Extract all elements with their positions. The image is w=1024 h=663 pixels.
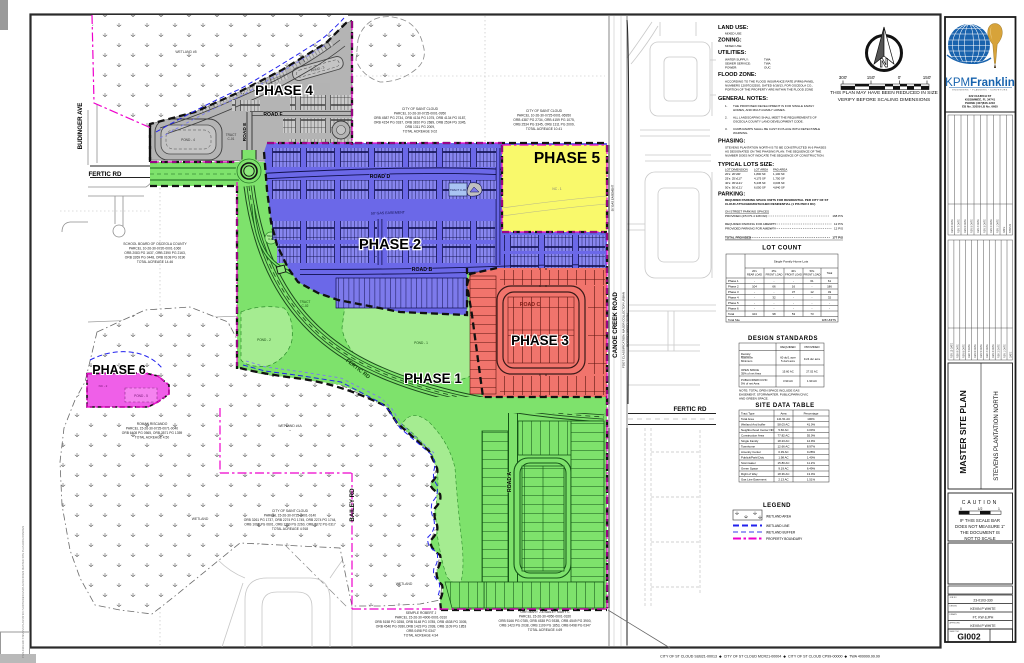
svg-text:-: - [774,301,775,305]
svg-text:300': 300' [839,75,848,80]
svg-text:-: - [754,296,755,300]
svg-text:ORB 2534 PG 3345, ORB 1311 PG: ORB 2534 PG 3345, ORB 1311 PG 2009, [513,123,574,127]
svg-text:0.39 AC: 0.39 AC [778,450,788,454]
svg-text:CANOE CREEK ROAD: CANOE CREEK ROAD [612,292,619,358]
svg-text:LOT DIMENSION: LOT DIMENSION [725,168,748,172]
svg-text:-: - [774,279,775,283]
svg-text:Phase 5: Phase 5 [728,301,739,305]
svg-text:REAR LOAD: REAR LOAD [747,273,762,277]
svg-text:100%: 100% [807,417,815,421]
svg-text:REV 3 DATE: REV 3 DATE [984,219,987,233]
svg-text:WETLAND BUFFER: WETLAND BUFFER [766,531,796,535]
svg-text:SITE DATA TABLE: SITE DATA TABLE [755,403,814,409]
svg-text:1,100 SF: 1,100 SF [773,172,785,176]
svg-text:ROMAN RISCANDO: ROMAN RISCANDO [137,422,168,426]
svg-text:ORB 5166 PG 0785, ORB 4538 PG: ORB 5166 PG 0785, ORB 4538 PG 933B, ORB … [499,619,592,623]
svg-text:5,445 SF: 5,445 SF [754,181,766,185]
svg-text:DOES NOT MEASURE 1": DOES NOT MEASURE 1" [955,524,1005,529]
svg-text:REV 6 DATE: REV 6 DATE [964,219,967,233]
svg-text:Minimum: Minimum [741,359,753,363]
svg-text:AND GREEN SPACE.: AND GREEN SPACE. [739,397,769,401]
svg-text:TOTAL PROVIDED: TOTAL PROVIDED [725,236,752,240]
svg-text:PHASE 1: PHASE 1 [404,371,462,386]
svg-text:0.28%: 0.28% [807,450,816,454]
svg-text:NC - 2: NC - 2 [99,384,108,388]
svg-text:REV 4 DATE: REV 4 DATE [977,219,980,233]
svg-text:1.98 AC: 1.98 AC [778,456,788,460]
svg-text:LOT COUNT: LOT COUNT [762,246,802,252]
svg-text:SCHOOL BOARD OF OSCEOLA COUNTY: SCHOOL BOARD OF OSCEOLA COUNTY [123,242,187,246]
svg-text:-: - [793,279,794,283]
svg-text:PARCEL 15-26-30-4950-0001-0320: PARCEL 15-26-30-4950-0001-0320 [519,615,571,619]
svg-text:20's: 20'x90': 20's: 20'x90' [725,172,741,176]
svg-text:DRAWN: DRAWN [950,613,958,616]
svg-text:-: - [754,307,755,311]
svg-text:Green Space: Green Space [741,467,758,471]
svg-text:40's: 40's [791,269,796,273]
svg-text:141.51 AC: 141.51 AC [777,417,791,421]
svg-text:61: 61 [828,279,832,283]
svg-text:168 P/S: 168 P/S [832,214,843,218]
svg-text:ROAD D: ROAD D [370,174,391,180]
svg-text:186: 186 [827,285,832,289]
svg-text:POWER:: POWER: [725,66,737,70]
svg-text:REV 9 DATE: REV 9 DATE [956,344,959,358]
svg-text:LAND USE:: LAND USE: [718,25,749,31]
svg-text:IF THIS SCALE BAR: IF THIS SCALE BAR [960,518,1000,523]
svg-text:MASTER SITE PLAN: MASTER SITE PLAN [958,390,968,474]
svg-text:PHASE 3: PHASE 3 [511,333,569,348]
svg-text:50' GAS EASEMENT: 50' GAS EASEMENT [611,184,615,211]
svg-text:-: - [812,301,813,305]
svg-text:ORB 1311 PG 2009,: ORB 1311 PG 2009, [405,125,435,129]
svg-text:25's: 25's [772,269,777,273]
svg-text:5 du/1 acre: 5 du/1 acre [781,359,795,363]
svg-text:PAD AREA: PAD AREA [773,168,787,172]
svg-text:NUMBER DOES NOT INDICATE THE S: NUMBER DOES NOT INDICATE THE SEQUENCE OF… [725,154,825,158]
svg-text:Phase 3: Phase 3 [728,290,739,294]
svg-text:98: 98 [772,312,776,316]
svg-text:DESIGN STANDARDS: DESIGN STANDARDS [748,336,818,342]
svg-text:55.0%: 55.0% [807,434,816,438]
svg-text:FT, KW &JPH: FT, KW &JPH [973,616,994,620]
svg-text:REV 1 DATE: REV 1 DATE [997,219,1000,233]
svg-text:37: 37 [792,290,796,294]
svg-text:49: 49 [828,290,832,294]
svg-text:Total Area: Total Area [741,417,754,421]
svg-text:4.00%: 4.00% [807,428,816,432]
svg-text:TRACT C-06: TRACT C-06 [450,188,467,192]
svg-text:ORB 4154 PG 0187, ORB 3810 PG: ORB 4154 PG 0187, ORB 3810 PG 2689, ORB … [374,121,467,125]
svg-text:ORB 3261 PG 1737, ORB 2274 PG: ORB 3261 PG 1737, ORB 2274 PG 1745, ORB … [244,518,337,522]
svg-text:Wetland And buffer: Wetland And buffer [741,423,766,427]
svg-text:C-04: C-04 [268,237,274,241]
svg-text:3.90 AC: 3.90 AC [783,379,793,383]
svg-text:1,800 SF: 1,800 SF [754,172,766,176]
svg-text:WETLAND #5: WETLAND #5 [175,50,196,54]
svg-text:SEMPLE ROBERT J: SEMPLE ROBERT J [406,611,437,615]
svg-text:41.0%: 41.0% [807,423,816,427]
svg-text:ZONING:: ZONING: [718,38,742,44]
svg-text:3,036 SF: 3,036 SF [773,181,785,185]
svg-text:POSTED SPEED: 50 PH: POSTED SPEED: 50 PH [626,313,630,346]
svg-text:Stormwater: Stormwater [741,461,756,465]
svg-text:ROAD F: ROAD F [263,112,282,118]
svg-text:STEVENS PLANTATION NORTH: STEVENS PLANTATION NORTH [994,391,1000,480]
svg-text:53: 53 [792,312,796,316]
svg-text:ORB 1423 PG 2038, ORB 1109 PG: ORB 1423 PG 2038, ORB 1109 PG 1853, ORB … [499,624,591,628]
svg-text:C-01: C-01 [228,137,235,141]
svg-text:DATE: DATE [1010,351,1013,358]
svg-text:PORTION OF THE PROPERTY ARE W: PORTION OF THE PROPERTY ARE WITHIN THE F… [725,88,813,92]
svg-text:50's: 50'x121': 50's: 50'x121' [725,186,743,190]
svg-text:REV 10 DATE: REV 10 DATE [951,342,954,358]
svg-text:FERTIC RD: FERTIC RD [674,406,708,413]
svg-text:Gas Line Easement: Gas Line Easement [741,478,767,482]
svg-text:25's: 25'x117': 25's: 25'x117' [725,177,743,181]
svg-text:18.23 AC: 18.23 AC [778,439,790,443]
svg-text:Total: Total [827,271,833,275]
svg-text:1.40%: 1.40% [807,456,816,460]
svg-text:Single Family Home Lots: Single Family Home Lots [774,260,809,264]
svg-text:TOTAL ACREAGE 4.50: TOTAL ACREAGE 4.50 [135,436,170,440]
svg-text:1,750 SF: 1,750 SF [773,177,785,181]
svg-text:8.97%: 8.97% [807,445,816,449]
svg-text:LEGEND: LEGEND [763,503,791,509]
svg-text:ORB 4587 PG 2734, ORB 4134 PG: ORB 4587 PG 2734, ORB 4134 PG 1075, ORB … [374,116,467,120]
svg-text:ORB 3269 PG 0448, ORB 0108 PG: ORB 3269 PG 0448, ORB 0108 PG 0190 [125,256,186,260]
svg-text:58.03 AC: 58.03 AC [778,423,790,427]
svg-text:TOTAL ACREAGE 4.94: TOTAL ACREAGE 4.94 [404,634,439,638]
svg-text:15.60 AC: 15.60 AC [782,370,794,374]
svg-text:REQUIRED: REQUIRED [780,345,795,349]
svg-text:TOTAL ACREAGE 4.69: TOTAL ACREAGE 4.69 [528,628,563,632]
svg-text:Total: Total [728,312,734,316]
svg-text:9.24 du/ acre: 9.24 du/ acre [804,357,821,361]
svg-text:TOTAL ACREAGE 14.46: TOTAL ACREAGE 14.46 [137,260,173,264]
svg-text:POND - 1: POND - 1 [414,341,428,345]
svg-text:18.36 AC: 18.36 AC [778,472,790,476]
svg-text:6.49%: 6.49% [807,467,816,471]
svg-text:NC - 1: NC - 1 [552,187,561,191]
svg-text:-: - [754,279,755,283]
svg-text:Townhome: Townhome [741,445,755,449]
svg-text:12: 12 [810,290,814,294]
svg-text:Phase 6: Phase 6 [728,307,739,311]
svg-text:REV 3 DATE: REV 3 DATE [992,344,995,358]
svg-text:FRONT LOAD: FRONT LOAD [804,273,821,277]
svg-text:61: 61 [810,279,814,283]
svg-text:Neighborhood Center ND: Neighborhood Center ND [741,428,774,432]
svg-text:50's: 50's [810,269,815,273]
svg-text:ORB 4546 PG 0930,ORB 1423 PG 2: ORB 4546 PG 0930,ORB 1423 PG 2038, ORB 1… [376,625,467,629]
svg-text:ROAD A: ROAD A [507,472,513,493]
svg-text:-: - [829,307,830,311]
svg-text:JOB NO: JOB NO [950,597,958,599]
svg-text:POND - 5: POND - 5 [134,394,148,398]
svg-text:APPROVED: APPROVED [950,622,961,625]
svg-text:REV 7 DATE: REV 7 DATE [958,219,961,233]
svg-text:REV 4 DATE: REV 4 DATE [986,344,989,358]
svg-text:-: - [812,296,813,300]
svg-text:OSCEOLA COUNTY LAND DEVELOPMEN: OSCEOLA COUNTY LAND DEVELOPMENT CODE. [733,120,804,124]
svg-text:FLOOD ZONE:: FLOOD ZONE: [718,72,757,78]
svg-text:104: 104 [752,285,757,289]
svg-text:WARNING.: WARNING. [733,131,748,135]
svg-text:⌄: ⌄ [289,428,292,432]
svg-text:11.2%: 11.2% [807,461,815,465]
svg-text:Percentage: Percentage [804,412,819,416]
svg-text:-: - [774,307,775,311]
svg-text:WETLAND: WETLAND [396,582,413,586]
svg-text:WETLAND: WETLAND [192,517,209,521]
svg-text:CLOUD ATTACHED/DETACHED RESIDE: CLOUD ATTACHED/DETACHED RESIDENTIAL (1 P… [725,202,815,206]
svg-text:Phase 2: Phase 2 [728,285,739,289]
svg-text:KPMFranklin: KPMFranklin [945,77,1015,89]
svg-text:5% of net Area: 5% of net Area [741,382,760,386]
svg-text:2.13 AC: 2.13 AC [778,478,788,482]
svg-text:Single Family: Single Family [741,439,759,443]
svg-text:73: 73 [810,312,814,316]
svg-text:328 UNITS: 328 UNITS [822,318,836,322]
svg-text:-: - [812,307,813,311]
svg-text:15.80 AC: 15.80 AC [778,461,790,465]
svg-text:Construction Area: Construction Area [741,434,764,438]
svg-text:CITY OF ST CLOUD SUB21-00013: CITY OF ST CLOUD SUB21-00013 ◆ CITY OF S… [660,655,880,659]
svg-text:FERTIC RD: FERTIC RD [89,171,123,178]
svg-text:-: - [793,301,794,305]
svg-text:PROVIDED: PROVIDED [804,345,819,349]
svg-text:ORB 1098 PG 0601, ORB 1130 PG: ORB 1098 PG 0601, ORB 1130 PG 2260, ORB … [244,523,336,527]
svg-text:KEVIN P WHITE: KEVIN P WHITE [970,607,996,611]
svg-text:1.90 AC: 1.90 AC [807,379,817,383]
svg-text:WETLAND LINE: WETLAND LINE [766,524,790,528]
svg-text:12.66 AC: 12.66 AC [778,445,790,449]
svg-text:HOMES, AND MULTI-FAMILY HOMES.: HOMES, AND MULTI-FAMILY HOMES. [733,108,786,112]
svg-text:PROVIDED (2/5 P/S 4 328 DU): PROVIDED (2/5 P/S 4 328 DU) [725,214,767,218]
svg-text:177 P/S: 177 P/S [832,236,843,240]
svg-text:-: - [812,285,813,289]
svg-text:TOTAL ACREAGE 4.918: TOTAL ACREAGE 4.918 [272,527,308,531]
svg-text:-: - [754,301,755,305]
svg-text:CITY OF SAINT CLOUD: CITY OF SAINT CLOUD [402,107,439,111]
svg-text:REV 1 DATE: REV 1 DATE [1004,344,1007,358]
svg-text:4,840 SF: 4,840 SF [773,186,785,190]
svg-text:0: 0 [960,507,962,511]
svg-text:MIXED USE: MIXED USE [725,32,742,36]
svg-text:12 P/S: 12 P/S [834,227,843,231]
svg-text:REV 8 DATE: REV 8 DATE [962,344,965,358]
svg-text:DESIGN: DESIGN [950,606,958,608]
svg-text:THIS PLAN MAY HAVE BEEN REDUCE: THIS PLAN MAY HAVE BEEN REDUCED IN SIZE [830,90,938,96]
svg-text:12.9%: 12.9% [807,439,816,443]
svg-text:150': 150' [923,75,932,80]
svg-text:STATUS: STATUS [1009,224,1012,233]
svg-text:-: - [793,296,794,300]
svg-text:TOTAL ACREAGE 9.02: TOTAL ACREAGE 9.02 [403,130,438,134]
svg-text:6,050 SF: 6,050 SF [754,186,766,190]
svg-text:VERIFY BEFORE SCALING DIMENSIO: VERIFY BEFORE SCALING DIMENSIONS [838,97,930,103]
svg-text:Amenity Center: Amenity Center [741,450,761,454]
svg-text:DATE: DATE [1003,226,1006,233]
svg-text:KEVIN P WHITE: KEVIN P WHITE [970,624,996,628]
svg-text:CITY OF SAINT CLOUD: CITY OF SAINT CLOUD [526,109,563,113]
svg-text:1.: 1. [725,104,728,108]
svg-text:PHASE 6: PHASE 6 [92,363,146,377]
svg-text:ORB 5158 PG 0258, ORB 5148 PG: ORB 5158 PG 0258, ORB 5148 PG 0785, ORB … [375,620,468,624]
svg-text:150': 150' [867,75,876,80]
svg-text:-: - [793,307,794,311]
svg-text:CITY OF SAINT CLOUD: CITY OF SAINT CLOUD [272,509,309,513]
svg-text:5.66 AC: 5.66 AC [778,428,788,432]
svg-text:40's: 45'x121': 40's: 45'x121' [725,181,743,185]
svg-text:PARKING:: PARKING: [718,192,745,198]
svg-text:FRONT LOAD: FRONT LOAD [785,273,802,277]
svg-text:Phase 1: Phase 1 [728,279,739,283]
svg-text:Phase 4: Phase 4 [728,296,739,300]
svg-text:77.82 AC: 77.82 AC [778,434,790,438]
svg-text:ON STREET PARKING SPACES: ON STREET PARKING SPACES [725,210,769,214]
svg-text:PARCEL 10-26-30-0725-0001-0695: PARCEL 10-26-30-0725-0001-06950 [517,114,571,118]
svg-text:ORB 4387 PG 2734, ORB 4159 PG: ORB 4387 PG 2734, ORB 4159 PG 1075, [513,118,574,122]
svg-text:GI002: GI002 [957,632,980,642]
svg-text:35% of net Area: 35% of net Area [741,372,761,376]
svg-text:ORB 2083 PG 1637, ORB 2390 PG: ORB 2083 PG 1637, ORB 2390 PG 2163, [124,251,185,255]
svg-text:Area: Area [780,412,786,416]
svg-text:-: - [829,301,830,305]
svg-text:LOT AREA: LOT AREA [754,168,768,172]
svg-text:Tract Type: Tract Type [741,412,755,416]
svg-text:3.: 3. [725,127,728,131]
svg-text:-: - [774,290,775,294]
svg-text:32: 32 [828,296,832,300]
svg-text:PARCEL 15-26-30-0725-0071-0040: PARCEL 15-26-30-0725-0071-0040 [126,427,178,431]
svg-text:Total Site: Total Site [728,318,740,322]
svg-text:32: 32 [772,296,776,300]
svg-text:WETLAND AREA: WETLAND AREA [766,515,792,519]
svg-text:ROAD C: ROAD C [520,302,541,308]
svg-text:PROVIDED PARKING FOR AMENITY: PROVIDED PARKING FOR AMENITY [725,227,776,231]
svg-text:PARCEL 10-26-30-0725-0001-0950: PARCEL 10-26-30-0725-0001-0950 [394,112,446,116]
svg-text:CAUTION: CAUTION [962,500,999,506]
svg-text:UTILITIES:: UTILITIES: [718,50,746,56]
svg-text:9.19 AC: 9.19 AC [778,467,788,471]
svg-text:MIXED USE: MIXED USE [725,44,742,48]
svg-text:REV 2 DATE: REV 2 DATE [998,344,1001,358]
svg-text:N: N [880,56,889,70]
svg-text:12 P/S: 12 P/S [834,222,843,226]
svg-text:REV 2 DATE: REV 2 DATE [990,219,993,233]
svg-text:REV 7 DATE: REV 7 DATE [968,344,971,358]
svg-text:ORB 0498 PG 0347: ORB 0498 PG 0347 [406,629,435,633]
svg-text:BUDINGER AVE: BUDINGER AVE [77,103,84,150]
svg-text:4,175 SF: 4,175 SF [754,177,766,181]
svg-text:BAILEY RD: BAILEY RD [349,488,356,522]
svg-text:ROAD B: ROAD B [412,267,433,273]
svg-text:POND - 4: POND - 4 [181,138,195,142]
svg-text:NOT TO SCALE: NOT TO SCALE [964,536,995,541]
svg-text:PHASING:: PHASING: [718,139,745,145]
svg-text:EB No. 32059 LB No. 6605: EB No. 32059 LB No. 6605 [962,105,998,109]
svg-text:ORB 6408 PG 0565, ORB 3571 PG: ORB 6408 PG 0565, ORB 3571 PG 1359 [122,431,183,435]
svg-text:THE DOCUMENT IS: THE DOCUMENT IS [960,530,1000,535]
svg-text:PARCEL 15-26-30-0725-0001-0140: PARCEL 15-26-30-0725-0001-0140 [264,514,316,518]
svg-text:REV 6 DATE: REV 6 DATE [974,344,977,358]
svg-text:13.0%: 13.0% [807,472,816,476]
svg-text:20's: 20's [752,269,757,273]
svg-text:OUC: OUC [764,66,772,70]
svg-text:Publick/Park/Civic: Publick/Park/Civic [741,456,765,460]
svg-text:1: 1 [998,507,1000,511]
svg-text:TOTAL ACREAGE 10.41: TOTAL ACREAGE 10.41 [526,127,562,131]
svg-text:POND - 2: POND - 2 [257,338,271,342]
svg-text:66: 66 [772,285,776,289]
svg-text:2.: 2. [725,116,728,120]
svg-text:REV 8 DATE: REV 8 DATE [951,219,954,233]
svg-text:ORR MARY J & BAILEY MARY C: ORR MARY J & BAILEY MARY C [520,610,570,614]
svg-text:1.51%: 1.51% [807,478,816,482]
svg-text:C-02: C-02 [302,304,309,308]
svg-text:0': 0' [898,75,902,80]
svg-text:PHASE 2: PHASE 2 [359,237,421,253]
svg-text:104: 104 [752,312,757,316]
svg-text:ROAD E: ROAD E [242,122,248,141]
svg-text:23-0103-330: 23-0103-330 [973,599,992,603]
svg-text:PARCEL 15-26-30-4900-0001-0310: PARCEL 15-26-30-4900-0001-0310 [395,616,447,620]
svg-text:ENGINEERS • PLANNERS • SURVEYO: ENGINEERS • PLANNERS • SURVEYORS [952,89,1007,92]
svg-text:P:\23-0103-330 STEVENS PLANTAT: P:\23-0103-330 STEVENS PLANTATION NORTH\… [21,525,25,658]
svg-text:FRONT LOAD: FRONT LOAD [766,273,783,277]
svg-text:REQUIRED PARKING FOR AMENITY: REQUIRED PARKING FOR AMENITY [725,222,776,226]
svg-text:1/2: 1/2 [978,507,983,511]
svg-text:16: 16 [792,285,796,289]
svg-text:27.02 AC: 27.02 AC [806,370,818,374]
svg-text:GENERAL NOTES:: GENERAL NOTES: [718,96,768,102]
svg-text:REV 5 DATE: REV 5 DATE [980,344,983,358]
svg-text:PHASE 4: PHASE 4 [255,83,313,98]
svg-text:-: - [754,290,755,294]
svg-text:PHASE 5: PHASE 5 [534,150,601,167]
svg-text:PARCEL 10-26-30-0720-0001-1060: PARCEL 10-26-30-0720-0001-1060 [129,247,181,251]
svg-text:REV 5 DATE: REV 5 DATE [971,219,974,233]
svg-text:Right of Way: Right of Way [741,472,758,476]
svg-text:PROPERTY BOUNDARY: PROPERTY BOUNDARY [766,537,803,541]
